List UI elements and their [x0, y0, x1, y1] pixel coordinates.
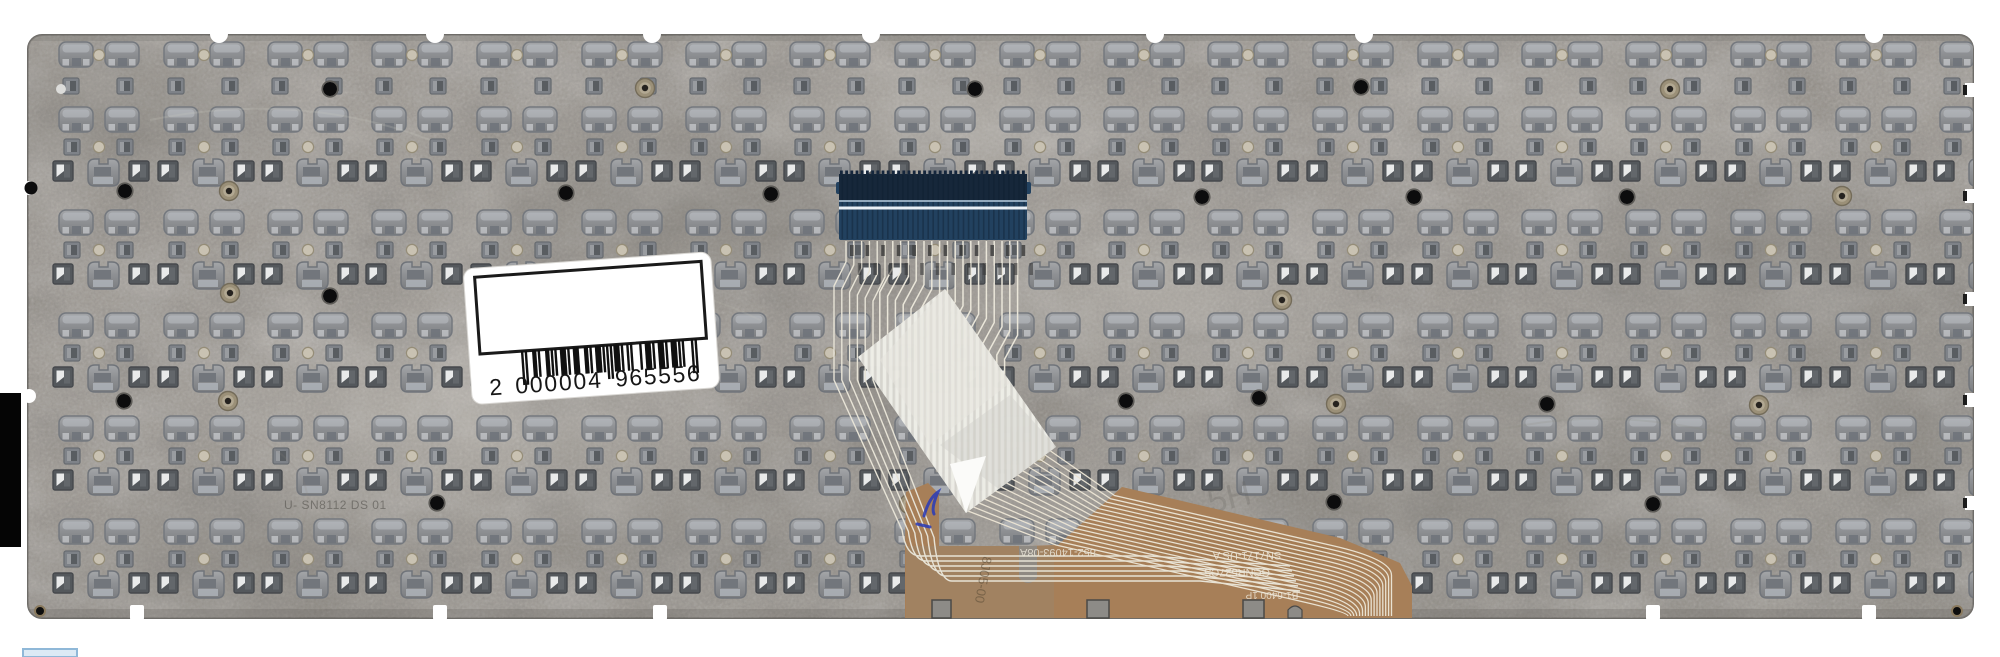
svg-text:U- SN8112 DS 01: U- SN8112 DS 01	[284, 498, 387, 512]
svg-text:B1-6400 1P: B1-6400 1P	[1245, 589, 1298, 600]
svg-text:SN7171-US A: SN7171-US A	[1212, 549, 1281, 561]
svg-text:GCNR527CS: GCNR527CS	[1204, 566, 1270, 578]
svg-text:2: 2	[488, 374, 503, 401]
svg-text:852-14093-08A: 852-14093-08A	[1019, 546, 1096, 558]
